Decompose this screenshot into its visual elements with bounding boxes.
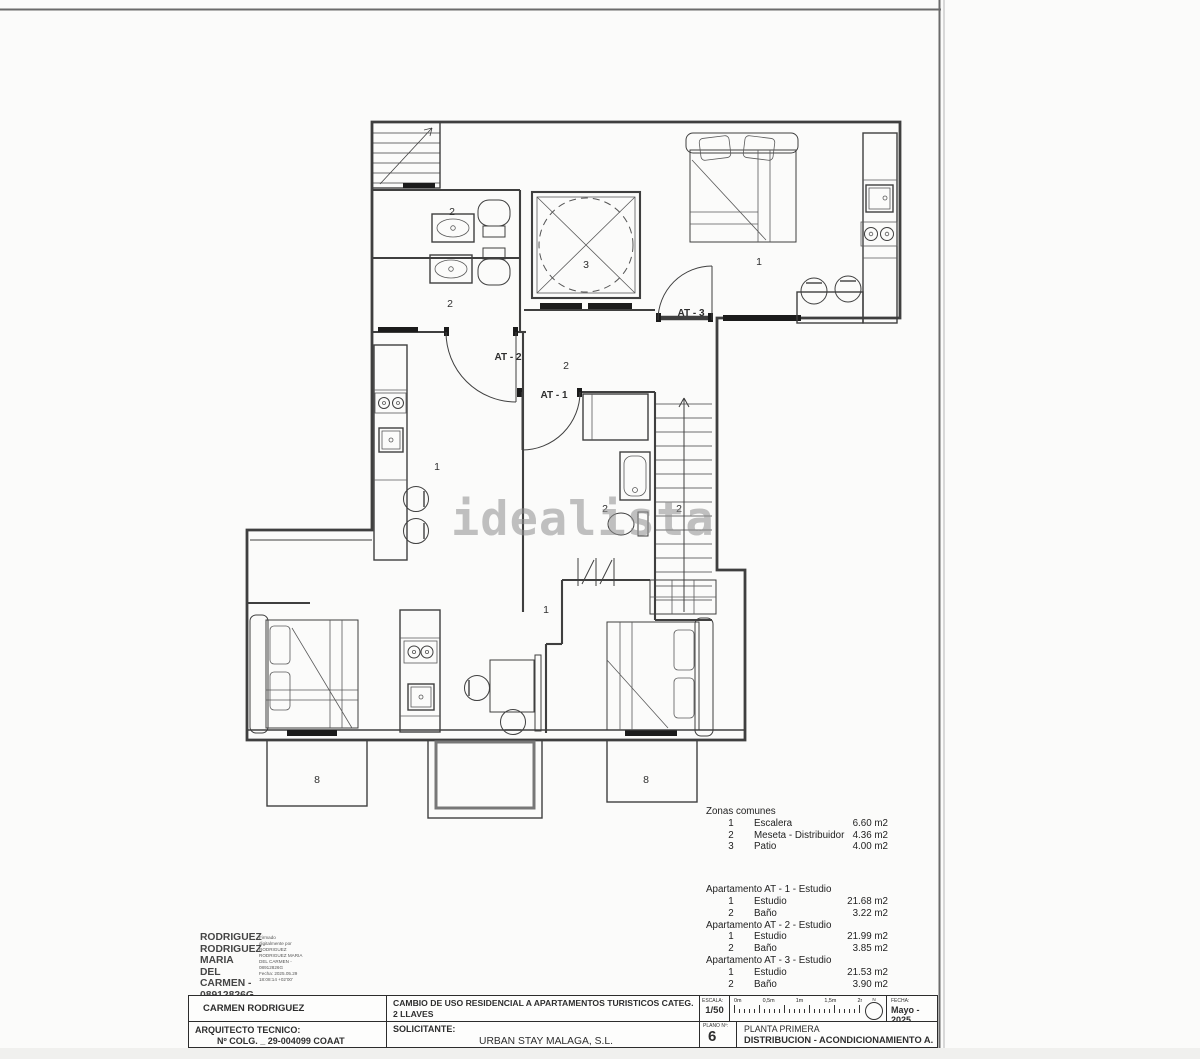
label-bath-bottom: 2 [447, 298, 453, 310]
legend-name: Escalera [754, 818, 853, 830]
legend-area: 3.90 m2 [853, 979, 888, 991]
legend-row: 2 Baño 3.90 m2 [706, 979, 888, 991]
legend-num: 1 [724, 896, 738, 908]
label-at3-room: 1 [756, 256, 762, 268]
table-and-chairs [465, 655, 542, 735]
legend-row: 2 Baño 3.85 m2 [706, 943, 888, 955]
label-meseta: 2 [563, 360, 569, 372]
legend-name: Baño [754, 908, 853, 920]
planta-line1: PLANTA PRIMERA [744, 1024, 937, 1035]
legend-row: 3 Patio 4.00 m2 [706, 841, 888, 853]
fecha-cell: FECHA: Mayo - 2025 [886, 996, 937, 1021]
signature-name: RODRIGUEZ RODRIGUEZ MARIA DEL CARMEN - 0… [200, 932, 256, 1002]
stairs-secondary [372, 122, 440, 188]
legend-name: Baño [754, 943, 853, 955]
legend-area: 6.60 m2 [853, 818, 888, 830]
interior-walls [247, 190, 745, 733]
legend-area: 4.36 m2 [853, 830, 888, 842]
legend-num: 1 [724, 818, 738, 830]
patio [532, 192, 640, 298]
legend-area: 3.22 m2 [853, 908, 888, 920]
arquitecto-cell: ARQUITECTO TECNICO: Nº COLG. _ 29-004099… [189, 1021, 386, 1047]
legend-apt1-title: Apartamento AT - 1 - Estudio [706, 884, 888, 896]
bed-bottom-right [607, 580, 716, 736]
solicitante-cell: SOLICITANTE: URBAN STAY MALAGA, S.L. [386, 1021, 699, 1047]
fecha-value: Mayo - 2025 [887, 1005, 937, 1021]
balconies [267, 740, 697, 818]
author-cell: CARMEN RODRIGUEZ [189, 996, 386, 1021]
plano-cell: PLANO Nº: 6 [699, 1021, 736, 1047]
area-legend: Zonas comunes 1 Escalera 6.60 m2 2 Meset… [706, 806, 888, 990]
title-block: CARMEN RODRIGUEZ CAMBIO DE USO RESIDENCI… [188, 995, 938, 1048]
idealista-watermark: idealista [451, 492, 715, 547]
label-balcony-right: 8 [643, 774, 649, 786]
legend-area: 21.99 m2 [847, 931, 888, 943]
escala-cell: ESCALA: 1/50 [699, 996, 729, 1021]
legend-num: 2 [724, 908, 738, 920]
legend-row: 2 Baño 3.22 m2 [706, 908, 888, 920]
escala-value: 1/50 [700, 1005, 729, 1016]
scale-ruler [734, 1005, 860, 1013]
project-line1: CAMBIO DE USO RESIDENCIAL A APARTAMENTOS… [393, 998, 699, 1019]
signature-detail: Firmado digitalmente por RODRIGUEZ RODRI… [259, 932, 302, 1002]
north-indicator: N [862, 996, 886, 1021]
door-arc-at2 [446, 332, 516, 402]
legend-area: 4.00 m2 [853, 841, 888, 853]
legend-row: 1 Estudio 21.53 m2 [706, 967, 888, 979]
scale-tick: 1,5m [824, 998, 836, 1004]
scale-tick: 1m [796, 998, 804, 1004]
kitchen-at3 [797, 133, 897, 323]
north-circle-icon [865, 1002, 883, 1020]
legend-name: Patio [754, 841, 853, 853]
scale-bar: 0m 0,5m 1m 1,5m 2m [729, 996, 862, 1021]
signature-name-line: CARMEN - [200, 978, 256, 990]
bed-at3 [686, 133, 798, 242]
north-label: N [862, 997, 886, 1002]
legend-name: Estudio [754, 896, 847, 908]
kitchen-at1 [400, 610, 440, 732]
fecha-label: FECHA: [887, 996, 937, 1004]
label-at3-door: AT - 3 [677, 308, 704, 319]
arquitecto-label: ARQUITECTO TECNICO: [195, 1025, 386, 1036]
label-bath-top: 2 [449, 206, 455, 218]
kitchen-at2 [374, 345, 429, 560]
bed-bottom-left [250, 615, 358, 733]
digital-signature: RODRIGUEZ RODRIGUEZ MARIA DEL CARMEN - 0… [200, 932, 302, 1002]
label-at1-room: 1 [543, 604, 549, 616]
legend-num: 2 [724, 979, 738, 991]
plano-value: 6 [703, 1029, 736, 1044]
solicitante-label: SOLICITANTE: [393, 1024, 699, 1034]
legend-row: 1 Estudio 21.68 m2 [706, 896, 888, 908]
solicitante-value: URBAN STAY MALAGA, S.L. [393, 1036, 699, 1047]
scale-tick: 0m [734, 998, 742, 1004]
label-at2-room: 1 [434, 461, 440, 473]
project-cell: CAMBIO DE USO RESIDENCIAL A APARTAMENTOS… [386, 996, 699, 1021]
planta-line2: DISTRIBUCION - ACONDICIONAMIENTO A. T. -… [744, 1035, 937, 1047]
legend-num: 2 [724, 830, 738, 842]
legend-num: 3 [724, 841, 738, 853]
legend-area: 21.68 m2 [847, 896, 888, 908]
legend-apt3-title: Apartamento AT - 3 - Estudio [706, 955, 888, 967]
signature-detail-line: 18:08:14 +02'00' [259, 977, 302, 983]
exterior-walls [247, 122, 900, 740]
legend-zonas-title: Zonas comunes [706, 806, 888, 818]
scale-tick: 0,5m [763, 998, 775, 1004]
planta-cell: PLANTA PRIMERA DISTRIBUCION - ACONDICION… [736, 1021, 937, 1047]
legend-area: 21.53 m2 [847, 967, 888, 979]
signature-name-line: MARIA DEL [200, 955, 256, 978]
bathroom-top-b [430, 248, 510, 285]
legend-name: Meseta - Distribuidor [754, 830, 853, 842]
label-patio: 3 [583, 259, 589, 271]
page: { "watermark": { "text": "idealista", "c… [0, 0, 1200, 1059]
legend-row: 1 Escalera 6.60 m2 [706, 818, 888, 830]
signature-name-line: RODRIGUEZ [200, 932, 256, 944]
legend-area: 3.85 m2 [853, 943, 888, 955]
label-at2-door: AT - 2 [494, 352, 521, 363]
legend-num: 1 [724, 931, 738, 943]
signature-name-line: RODRIGUEZ [200, 944, 256, 956]
legend-row: 2 Meseta - Distribuidor 4.36 m2 [706, 830, 888, 842]
stair-break-line [578, 558, 614, 586]
arquitecto-value: Nº COLG. _ 29-004099 COAAT MALAGA [195, 1036, 386, 1048]
scale-tick-labels: 0m 0,5m 1m 1,5m 2m [734, 998, 862, 1004]
legend-num: 1 [724, 967, 738, 979]
escala-label: ESCALA: [700, 996, 729, 1004]
label-at1-door: AT - 1 [540, 390, 567, 401]
legend-row: 1 Estudio 21.99 m2 [706, 931, 888, 943]
legend-apt2-title: Apartamento AT - 2 - Estudio [706, 920, 888, 932]
legend-name: Estudio [754, 931, 847, 943]
legend-num: 2 [724, 943, 738, 955]
bathroom-top-a [432, 200, 510, 242]
legend-name: Estudio [754, 967, 847, 979]
label-balcony-left: 8 [314, 774, 320, 786]
legend-name: Baño [754, 979, 853, 991]
page-bottom-edge [0, 1048, 1200, 1059]
